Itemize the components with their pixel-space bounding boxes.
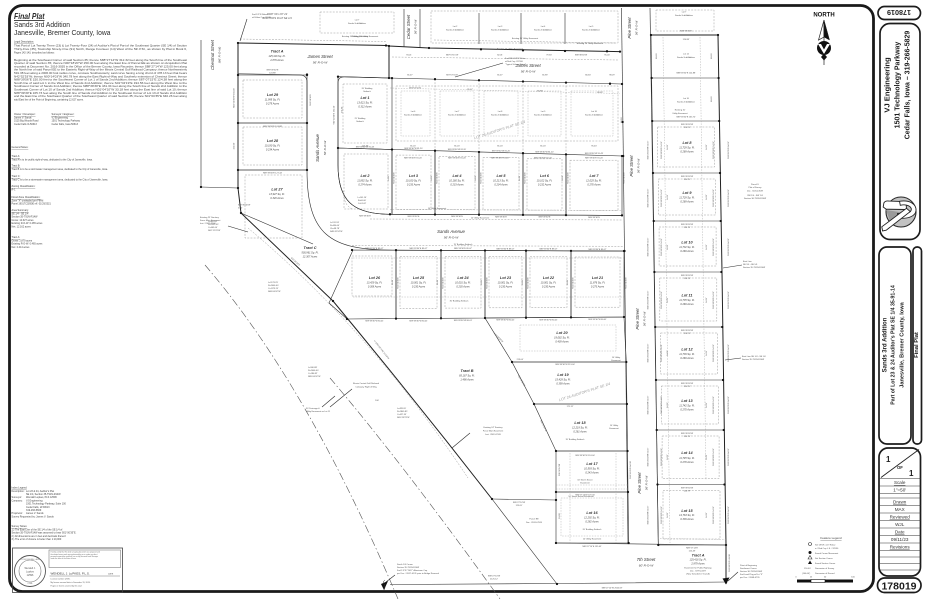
svg-text:56' R-O-W: 56' R-O-W [323,140,327,156]
svg-text:2.) All dimensions are in feet: 2.) All dimensions are in feet and decim… [12,535,67,538]
svg-text:Lot 14: Lot 14 [681,451,693,455]
svg-text:N89°39'30"E 89.07': N89°39'30"E 89.07' [497,248,516,250]
svg-text:Gross: 2.879 acres: Gross: 2.879 acres [12,239,33,242]
svg-text:Pine Street: Pine Street [637,472,642,494]
svg-text:Lot 5: Lot 5 [496,174,506,178]
svg-text:N89°39'30"E 81.20': N89°39'30"E 81.20' [585,158,604,160]
svg-text:Tract A: Tract A [692,554,705,558]
svg-text:Final Plat: Final Plat [914,332,920,358]
svg-text:L=1173.29': L=1173.29' [268,282,279,284]
svg-text:L=465.09': L=465.09' [208,221,218,223]
svg-text:N42°52'53"W; thence N00°14'03": N42°52'53"W; thence N00°14'03"W 340.78 f… [14,75,188,78]
svg-text:N48°42'24"W: N48°42'24"W [330,231,342,233]
svg-text:S89°39'30"W 213.04': S89°39'30"W 213.04' [555,364,575,366]
svg-text:319-266-5829: 319-266-5829 [26,509,42,512]
svg-text:34.07': 34.07' [667,144,669,150]
svg-text:Lot 8: Lot 8 [682,141,692,145]
svg-text:94.07': 94.07' [431,175,433,181]
svg-text:10,001 Sq. Ft.: 10,001 Sq. Ft. [411,282,427,285]
svg-text:Lot 6: Lot 6 [540,174,550,178]
svg-text:0.232 Acres: 0.232 Acres [538,184,552,187]
svg-text:C=427.39': C=427.39' [397,414,407,416]
svg-text:Cedar Falls IA 50613: Cedar Falls IA 50613 [14,123,37,126]
svg-text:34.07': 34.07' [706,454,708,460]
svg-text:124.38': 124.38' [362,146,369,148]
svg-text:10,102 Sq. Ft.: 10,102 Sq. Ft. [537,180,553,183]
svg-text:S01°20'30"E 94.07': S01°20'30"E 94.07' [661,447,663,465]
svg-text:341.58': 341.58' [234,142,236,149]
svg-text:R-1: R-1 [12,188,17,191]
svg-text:WENDELL J. LuPKES, P.L.S.: WENDELL J. LuPKES, P.L.S. [51,572,90,576]
svg-text:N08°06'02"W: N08°06'02"W [268,291,280,293]
svg-text:N89°39'30"E: N89°39'30"E [539,217,551,219]
svg-text:S01°20'30"E 94.07': S01°20'30"E 94.07' [661,343,663,361]
svg-text:Survey Notes:: Survey Notes: [12,525,28,528]
svg-text:N89°39'30"E 89.07': N89°39'30"E 89.07' [366,248,385,250]
svg-text:82.01': 82.01' [497,55,503,57]
svg-text:S01°09'35"E 84.07': S01°09'35"E 84.07' [728,343,730,361]
svg-text:34.07': 34.07' [667,244,669,250]
svg-text:Proprietor:: Proprietor: [12,512,24,515]
svg-text:N02°11'23"W: N02°11'23"W [208,230,220,232]
svg-text:N01°20'30"W 150.00': N01°20'30"W 150.00' [234,88,236,108]
svg-text:said East line of the Point of: said East line of the Point of Beginning… [14,98,84,101]
svg-text:0.274 Acres: 0.274 Acres [358,184,372,187]
svg-text:Doc. #2014-3539: Doc. #2014-3539 [747,190,764,192]
svg-text:S89°39'30"W: S89°39'30"W [681,224,693,226]
svg-text:Tract C:: Tract C: [12,175,21,178]
svg-text:S01°00'35"E 40.00': S01°00'35"E 40.00' [729,553,731,571]
svg-text:Lupkes: Lupkes [26,570,35,573]
svg-text:Zone "X" unshaded per FIRM: Zone "X" unshaded per FIRM [12,199,44,202]
svg-text:0.269 Acres: 0.269 Acres [680,201,694,204]
svg-text:S89°39'30"W: S89°39'30"W [681,433,693,435]
svg-text:1501 Technology Parkway: 1501 Technology Parkway [52,120,81,123]
svg-text:80.26': 80.26' [656,53,658,59]
svg-text:0.282 Acres: 0.282 Acres [585,521,599,524]
svg-text:0.233 Acres: 0.233 Acres [407,184,421,187]
svg-text:Chestnut Street: Chestnut Street [210,39,215,70]
svg-text:S01°20'30"E 94.07': S01°20'30"E 94.07' [661,290,663,308]
svg-text:124.79': 124.79' [684,227,691,229]
svg-text:Section 35-T91N-R14W: Section 35-T91N-R14W [12,216,39,219]
svg-text:N89°39'30"E 89.07': N89°39'30"E 89.07' [454,248,473,250]
svg-text:N88°39'30"E 165.73 feet along: N88°39'30"E 165.73 feet along the South … [14,92,188,95]
svg-text:Lot 28: Lot 28 [267,139,279,143]
svg-text:95.00': 95.00' [604,55,610,57]
svg-text:S01°09'35"E 84.07': S01°09'35"E 84.07' [728,188,730,206]
svg-text:11,876 Sq. Ft.: 11,876 Sq. Ft. [590,282,606,285]
svg-text:S01°09'35"E 84.07': S01°09'35"E 84.07' [728,237,730,255]
svg-text:Existing R-O-W: 0.465 acres: Existing R-O-W: 0.465 acres [12,222,44,225]
svg-text:81.47': 81.47' [407,75,413,77]
svg-text:Surveyor:: Surveyor: [12,496,23,499]
svg-text:S01°20'30"E: S01°20'30"E [437,172,439,184]
svg-text:S89°39'30"W 124.04': S89°39'30"W 124.04' [575,455,595,457]
svg-text:L=180.88': L=180.88' [308,367,318,369]
svg-text:Lot 29: Lot 29 [267,93,279,97]
svg-text:98.29': 98.29' [609,75,615,77]
svg-text:N01°20'30"W 94.07': N01°20'30"W 94.07' [648,447,650,466]
svg-text:0.312 Acres: 0.312 Acres [358,106,372,109]
svg-text:Cedar Street: Cedar Street [406,14,411,39]
svg-text:100': 100' [375,400,379,402]
svg-text:0.261 Acres: 0.261 Acres [573,431,587,434]
svg-text:80.26': 80.26' [711,96,713,102]
svg-text:93.21': 93.21' [406,55,412,57]
svg-text:C=180.82': C=180.82' [308,373,318,375]
svg-text:Lot 3: Lot 3 [409,174,419,178]
svg-text:Lot 12: Lot 12 [681,348,693,352]
svg-text:Zoning Classification:: Zoning Classification: [12,185,36,188]
svg-text:81.20': 81.20' [454,146,460,148]
svg-text:10,593 Sq. Ft.: 10,593 Sq. Ft. [584,468,600,471]
svg-text:10,213 Sq. Ft.: 10,213 Sq. Ft. [493,180,509,183]
svg-text:S01°20'30"E 94.07': S01°20'30"E 94.07' [661,505,663,523]
svg-text:C=91.02': C=91.02' [358,203,367,205]
svg-text:12596: 12596 [27,574,34,577]
svg-text:56' R-O-W: 56' R-O-W [313,61,329,65]
svg-text:Tract B:: Tract B: [12,165,21,168]
svg-text:Lot 4: Lot 4 [452,174,462,178]
svg-text:and the East line of the South: and the East line of the Southeast Quart… [14,95,188,98]
svg-text:N89°39'30"E 127.44': N89°39'30"E 127.44' [263,173,283,175]
svg-text:S01°20'30"E 94.07': S01°20'30"E 94.07' [713,447,715,465]
svg-text:Drawn: Drawn [893,500,907,505]
svg-text:69.07': 69.07' [522,279,524,285]
svg-text:Section 35-T91N-R14W was assum: Section 35-T91N-R14W was assumed to bear… [12,532,77,535]
svg-text:Lot 21: Lot 21 [592,276,603,280]
svg-text:34.07': 34.07' [667,194,669,200]
svg-text:56' R-O-W: 56' R-O-W [521,70,537,74]
svg-text:S01°20'30"E 94.07': S01°20'30"E 94.07' [713,343,715,361]
svg-text:0.230 Acres: 0.230 Acres [456,286,470,289]
svg-text:Lot 19: Lot 19 [557,373,569,377]
svg-text:94.07': 94.07' [475,175,477,181]
svg-text:VJ Engineering: VJ Engineering [26,499,43,502]
svg-text:34.07': 34.07' [706,297,708,303]
svg-text:Reviewed: Reviewed [890,515,911,520]
svg-text:125,416 Sq. Ft.: 125,416 Sq. Ft. [689,559,706,562]
svg-text:Lot 16: Lot 16 [586,511,598,515]
svg-text:S01°20'30"E: S01°20'30"E [528,277,530,289]
svg-text:S89°39'30"W: S89°39'30"W [681,488,693,490]
svg-text:Tract C: Tract C [303,246,316,250]
svg-text:General Notes:: General Notes: [12,146,29,149]
svg-text:L=428.20': L=428.20' [397,408,407,410]
svg-text:N01°20'30"W 94.07': N01°20'30"W 94.07' [648,395,650,414]
svg-text:0.438 Acres: 0.438 Acres [555,341,569,344]
svg-text:34.07': 34.07' [706,194,708,200]
svg-text:124.88': 124.88' [683,39,690,41]
svg-text:S89°39'30"W 80.01': S89°39'30"W 80.01' [496,320,515,322]
svg-text:S01°20'30"E 94.07': S01°20'30"E 94.07' [713,140,715,158]
svg-text:S01°20'30"E 94.07': S01°20'30"E 94.07' [713,395,715,413]
svg-text:Scale: Scale [894,480,906,485]
svg-text:Lot 11: Lot 11 [682,294,693,298]
svg-text:R=430.00': R=430.00' [330,225,340,227]
svg-text:N89°39'30"E 124.88': N89°39'30"E 124.88' [263,126,283,128]
svg-text:2125.12': 2125.12' [490,579,499,581]
svg-text:S01°09'35"E 84.07': S01°09'35"E 84.07' [728,395,730,413]
svg-text:S89°27'14"W: S89°27'14"W [513,502,525,504]
svg-text:Southwest Corner of Sands 2nd: Southwest Corner of Sands 2nd Addition; … [14,85,188,88]
svg-text:0.270 Acres: 0.270 Acres [680,461,694,464]
svg-text:S01°20'30"E 94.07': S01°20'30"E 94.07' [713,188,715,206]
svg-text:S01°20'30"E: S01°20'30"E [394,172,396,184]
svg-text:14,763 Sq. Ft.: 14,763 Sq. Ft. [679,514,695,517]
svg-text:S01°20'30"E: S01°20'30"E [568,172,570,184]
svg-text:Sands Avenue: Sands Avenue [315,134,320,162]
svg-text:NORTH: NORTH [813,13,834,19]
svg-text:3125 Big Woods Road: 3125 Big Woods Road [14,120,39,123]
svg-text:S87°07'15"E: S87°07'15"E [446,75,458,77]
svg-text:R=2006.00': R=2006.00' [268,285,279,287]
svg-text:C=465.04': C=465.04' [208,227,218,229]
svg-text:0.234 Acres: 0.234 Acres [494,184,508,187]
svg-text:Panel 19017C0290E eff. 01/29/2: Panel 19017C0290E eff. 01/29/2021 [12,203,52,206]
svg-text:81.89': 81.89' [542,75,548,77]
svg-text:178019: 178019 [881,581,916,593]
svg-text:Lot 18: Lot 18 [574,421,586,425]
svg-text:Tract A is to be public right-: Tract A is to be public right-of-way, de… [12,158,93,161]
svg-text:S01°09'35"E 84.07': S01°09'35"E 84.07' [728,290,730,308]
svg-text:3.) The error of closure is be: 3.) The error of closure is better than … [12,538,62,541]
svg-text:S01°09'35"E 84.07': S01°09'35"E 84.07' [728,447,730,465]
svg-text:S89°39'30"W: S89°39'30"W [238,205,250,207]
svg-text:Doc. #2019-2526: Doc. #2019-2526 [526,522,543,524]
svg-text:11,745 Sq. Ft.: 11,745 Sq. Ft. [679,457,695,460]
svg-text:34.07': 34.07' [667,402,669,408]
svg-text:S01°20'30"E: S01°20'30"E [310,94,312,106]
svg-text:0.269 Acres: 0.269 Acres [680,303,694,306]
svg-text:Tract A: Tract A [271,50,284,54]
svg-text:R=2006.00': R=2006.00' [308,370,319,372]
svg-text:0.270 Acres: 0.270 Acres [680,409,694,412]
svg-text:S89°39'30"W: S89°39'30"W [681,124,693,126]
svg-text:94.07': 94.07' [519,175,521,181]
svg-text:Lot 23 & 24, Auditor's Plat: Lot 23 & 24, Auditor's Plat [26,490,54,493]
svg-text:80.63': 80.63' [585,75,591,77]
svg-text:N89°39'30"E 81.20': N89°39'30"E 81.20' [534,158,553,160]
svg-text:C=1173.25': C=1173.25' [268,288,279,290]
svg-text:Beginning at the Southeast Cor: Beginning at the Southeast Corner of sai… [14,59,187,62]
svg-text:Tract C is to be a stormwater: Tract C is to be a stormwater management… [12,178,109,181]
svg-text:213.04': 213.04' [517,359,524,361]
svg-text:N89°39'30"E 81.20': N89°39'30"E 81.20' [448,158,467,160]
svg-text:Lot 1: Lot 1 [360,96,369,100]
svg-text:2.879 Acres: 2.879 Acres [690,563,705,566]
svg-text:Description:: Description: [12,490,25,493]
svg-text:N89°39'30"E 165.70': N89°39'30"E 165.70' [676,117,696,119]
svg-text:11,995 Sq. Ft.: 11,995 Sq. Ft. [265,99,281,102]
svg-text:69.07': 69.07' [392,279,394,285]
svg-text:S01°20'30"E 94.07': S01°20'30"E 94.07' [661,188,663,206]
svg-text:124.79': 124.79' [684,127,691,129]
svg-text:Tract B: Tract B [460,369,473,373]
svg-text:N87°07'15"W: N87°07'15"W [446,55,458,57]
svg-text:w/Red Cap #12596: w/Red Cap #12596 [505,61,524,63]
svg-text:R=2595.93': R=2595.93' [208,224,219,226]
svg-text:Lot 26: Lot 26 [369,276,381,280]
svg-text:MAX: MAX [895,507,905,512]
svg-text:13,947 Sq. Ft.: 13,947 Sq. Ft. [269,193,285,196]
svg-text:Net: 12.162 acres: Net: 12.162 acres [12,226,32,229]
svg-text:Net: 2.414 acres: Net: 2.414 acres [12,246,31,249]
svg-text:S01°20'30"E: S01°20'30"E [481,172,483,184]
svg-text:Doc. #1991-1697: Doc. #1991-1697 [690,571,707,573]
svg-text:James Street: James Street [306,54,333,59]
svg-text:81.20': 81.20' [497,146,503,148]
svg-text:S01°20'30"E 94.07': S01°20'30"E 94.07' [661,237,663,255]
svg-text:S89°39'30"W: S89°39'30"W [681,383,693,385]
svg-text:Revisions: Revisions [890,545,911,550]
svg-text:80.26': 80.26' [711,53,713,59]
svg-text:1.496 Acres: 1.496 Acres [460,379,474,382]
svg-text:N88°39'56"E 150.00 feet to the: N88°39'56"E 150.00 feet to the Southwest… [14,79,188,82]
svg-text:81.47': 81.47' [497,75,503,77]
svg-text:Lot 13: Lot 13 [681,399,693,403]
svg-text:124.79': 124.79' [684,436,691,438]
svg-text:12,025 Sq. Ft.: 12,025 Sq. Ft. [586,180,602,183]
svg-text:0.230 Acres: 0.230 Acres [499,286,513,289]
svg-text:N01°20'30"W 94.07': N01°20'30"W 94.07' [648,505,650,524]
svg-text:N89°39'30"E 89.07': N89°39'30"E 89.07' [410,248,429,250]
svg-text:S89°39'30"W 80.01': S89°39'30"W 80.01' [409,320,428,322]
svg-text:Flood Zone Classification:: Flood Zone Classification: [12,196,41,199]
svg-text:Lot 10: Lot 10 [681,241,693,245]
svg-text:Surveyor / Engineer:: Surveyor / Engineer: [52,113,75,116]
svg-text:Tract A:: Tract A: [12,236,21,239]
svg-text:34.07': 34.07' [706,512,708,518]
svg-text:34.07': 34.07' [706,402,708,408]
svg-text:R=2809.85': R=2809.85' [397,411,408,413]
svg-text:S88°38'30"W: S88°38'30"W [575,55,587,57]
svg-text:Lot 23: Lot 23 [500,276,512,280]
svg-text:S01°20'30"E: S01°20'30"E [573,277,575,289]
svg-text:S89°39'30"W: S89°39'30"W [681,275,693,277]
svg-text:34.07': 34.07' [706,244,708,250]
svg-text:11,732 Sq. Ft.: 11,732 Sq. Ft. [679,246,695,249]
svg-text:12,219 Sq. Ft.: 12,219 Sq. Ft. [572,427,588,430]
svg-text:Company:: Company: [12,499,23,502]
svg-text:South line of said Lot 1 to th: South line of said Lot 1 to the West lin… [14,82,188,85]
svg-text:0.273 Acres: 0.273 Acres [591,286,605,289]
svg-text:Sands Avenue: Sands Avenue [437,229,465,234]
svg-text:S01°09'35"E 84.07': S01°09'35"E 84.07' [728,505,730,523]
svg-text:1.) The East Line of the SE 1/: 1.) The East Line of the SE 1/4 of the S… [12,528,63,531]
svg-text:Tract B is to be a stormwater: Tract B is to be a stormwater management… [12,168,109,171]
svg-text:56' R-O-W: 56' R-O-W [414,19,418,35]
svg-text:Lot 7: Lot 7 [589,174,599,178]
svg-text:S01°20'30"E 94.07': S01°20'30"E 94.07' [661,395,663,413]
svg-text:SW 1/4 - SW 1/4: SW 1/4 - SW 1/4 [747,195,763,197]
svg-text:N88°39'30"E: N88°39'30"E [680,31,692,33]
svg-text:0.269 Acres: 0.269 Acres [680,357,694,360]
svg-text:178019: 178019 [887,8,911,17]
svg-text:19,062 Sq. Ft.: 19,062 Sq. Ft. [554,337,570,340]
svg-text:N89°39'30"E: N89°39'30"E [495,216,507,218]
svg-text:0.233 Acres: 0.233 Acres [450,184,464,187]
svg-text:10,160 Sq. Ft.: 10,160 Sq. Ft. [449,180,465,183]
svg-text:S89°39'30"W 80.01': S89°39'30"W 80.01' [588,319,607,321]
svg-text:Area Summary:: Area Summary: [12,209,30,212]
svg-text:81.20': 81.20' [540,146,546,148]
svg-text:Janesville, Bremer County, Iow: Janesville, Bremer County, Iowa [14,28,111,37]
svg-text:L=101.16': L=101.16' [357,197,367,199]
svg-text:0.320 Acres: 0.320 Acres [270,197,284,200]
svg-text:N88°39'30"E 124.88': N88°39'30"E 124.88' [676,73,696,75]
svg-text:0.230 Acres: 0.230 Acres [412,286,426,289]
svg-text:w / Red Cap L.S. #12596: w / Red Cap L.S. #12596 [815,548,839,550]
svg-text:S89°39'30"W 80.01': S89°39'30"W 80.01' [539,319,558,321]
svg-text:11,729 Sq. Ft.: 11,729 Sq. Ft. [679,147,695,150]
svg-text:N89°39'30"E: N89°39'30"E [408,216,420,218]
svg-text:S89°39'30"W 81.20': S89°39'30"W 81.20' [448,149,467,151]
svg-text:12.307 Acres: 12.307 Acres [303,256,318,259]
svg-text:10,001 Sq. Ft.: 10,001 Sq. Ft. [455,282,471,285]
svg-text:0.358 Acres: 0.358 Acres [556,383,570,386]
svg-text:95.43': 95.43' [591,146,597,148]
svg-text:Pages 142-143, described as fo: Pages 142-143, described as follows: [14,52,55,55]
svg-text:Pine Street: Pine Street [635,308,640,330]
svg-text:S89°27'14"W 129.04': S89°27'14"W 129.04' [575,495,595,497]
svg-text:Lot 24: Lot 24 [457,276,469,280]
svg-text:S01°32'45"E 84.30': S01°32'45"E 84.30' [630,460,632,478]
svg-text:S89°39'30"W 81.20': S89°39'30"W 81.20' [492,150,511,152]
svg-text:15,429 Sq. Ft.: 15,429 Sq. Ft. [555,379,571,382]
svg-text:N89°39'30"E: N89°39'30"E [588,217,600,219]
svg-text:0.243 Acres: 0.243 Acres [585,472,599,475]
svg-text:Final Plat: Final Plat [14,11,45,21]
svg-text:N01°20'30"W 94.07': N01°20'30"W 94.07' [648,290,650,309]
svg-text:N89°39'30"E 89.07': N89°39'30"E 89.07' [540,249,559,251]
svg-text:7th Street: 7th Street [637,557,656,562]
svg-text:34.07': 34.07' [667,350,669,356]
svg-text:124.79': 124.79' [684,333,691,335]
svg-text:James V. Sands: James V. Sands [14,116,32,119]
svg-text:125,416 Sq. Ft.: 125,416 Sq. Ft. [268,55,285,58]
svg-text:5.00': 5.00' [238,208,243,210]
svg-text:Wendell J.: Wendell J. [24,567,35,570]
svg-text:Part of Lot 23 & 24 Auditor's: Part of Lot 23 & 24 Auditor's Plat SE 1/… [891,285,897,405]
svg-text:Lot 25: Lot 25 [413,276,425,280]
svg-text:Lot 17: Lot 17 [586,462,598,466]
svg-text:Feature Legend: Feature Legend [820,536,842,540]
svg-text:N01°20'30"W 94.07': N01°20'30"W 94.07' [648,237,650,256]
svg-text:536,961 Sq. Ft.: 536,961 Sq. Ft. [301,252,318,255]
svg-text:69.07': 69.07' [437,279,439,285]
svg-text:Cedar Falls, Iowa 50613: Cedar Falls, Iowa 50613 [52,123,79,126]
svg-text:Sands 3rd Addition: Sands 3rd Addition [883,317,889,372]
svg-text:S01°32'14"W: S01°32'14"W [559,464,561,476]
svg-text:69.07': 69.07' [481,279,483,285]
svg-text:34.07': 34.07' [667,512,669,518]
svg-text:124.79': 124.79' [684,491,691,493]
svg-text:S88°27'14"W: S88°27'14"W [488,576,500,578]
svg-text:Janesville, Bremer County, Iow: Janesville, Bremer County, Iowa [900,301,906,387]
svg-text:124.88': 124.88' [269,72,276,74]
svg-text:69.07': 69.07' [567,279,569,285]
svg-text:90.00': 90.00' [559,513,561,519]
svg-text:Index Legend: Index Legend [12,487,28,490]
svg-text:0.234 Acres: 0.234 Acres [266,149,280,152]
svg-text:0.275 Acres: 0.275 Acres [266,103,280,106]
svg-text:S89°39'30"W 81.20': S89°39'30"W 81.20' [404,148,423,150]
svg-text:1501 Technology Parkway, Suite: 1501 Technology Parkway, Suite 100 [26,503,67,506]
svg-text:S89°39'30"W: S89°39'30"W [681,330,693,332]
svg-text:recorded at Document No. 2016-: recorded at Document No. 2016-3035 in th… [14,65,188,68]
